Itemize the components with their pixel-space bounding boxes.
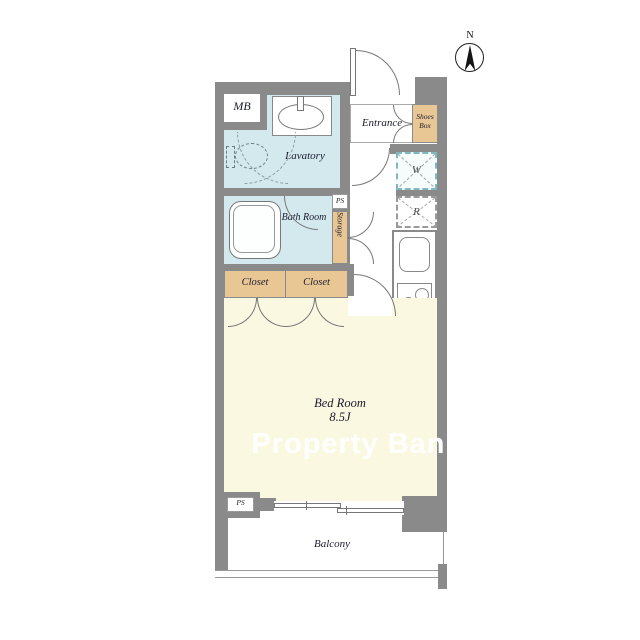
bathtub-inner-line (233, 205, 275, 253)
floor-plan: MB Lavatory Bath Room PS Storage Entranc… (0, 0, 640, 640)
bathtub-icon (229, 201, 281, 259)
shoes-box-label: Shoes Box (413, 113, 437, 130)
front-door-swing-arc (356, 50, 400, 95)
kitchen-sink-icon (399, 237, 430, 272)
shoes-box: Shoes Box (412, 104, 438, 143)
closet-right: Closet (285, 270, 348, 298)
wall (215, 82, 224, 514)
window-panel (274, 503, 341, 508)
closet-left-label: Closet (225, 277, 285, 289)
storage-label: Storage (336, 212, 345, 237)
washer-space: W (396, 152, 437, 190)
faucet-icon (297, 96, 304, 111)
ps-shaft-bottom: PS (227, 497, 254, 512)
toilet-icon (226, 146, 235, 168)
fridge-space: R (396, 196, 437, 228)
window-tick (306, 501, 307, 510)
bedroom-name: Bed Room (280, 396, 400, 410)
room-mb: MB (224, 94, 260, 122)
balcony-label: Balcony (282, 538, 382, 551)
ps-shaft-top: PS (332, 194, 348, 209)
sliding-window (274, 501, 404, 515)
closet-right-label: Closet (286, 277, 347, 289)
washer-label: W (398, 164, 435, 177)
wall (224, 188, 340, 196)
watermark: Property Bank (237, 428, 477, 461)
ps-top-label: PS (333, 197, 347, 206)
wall (437, 82, 447, 532)
bedroom-label: Bed Room 8.5J (280, 396, 400, 425)
bedroom-size: 8.5J (280, 410, 400, 424)
wall (340, 94, 350, 194)
north-label: N (452, 30, 488, 41)
window-panel (337, 508, 404, 513)
balcony-railing (215, 570, 447, 578)
wall (224, 122, 260, 130)
north-compass-icon: N (452, 30, 488, 78)
washbasin-icon (272, 96, 332, 136)
wall (402, 496, 447, 532)
mb-label: MB (224, 100, 260, 114)
window-tick (346, 506, 347, 515)
wall (260, 94, 267, 130)
ps-bottom-label: PS (228, 499, 253, 508)
closet-left: Closet (224, 270, 286, 298)
fridge-label: R (398, 206, 435, 219)
room-storage: Storage (332, 211, 348, 264)
wall (438, 564, 447, 589)
